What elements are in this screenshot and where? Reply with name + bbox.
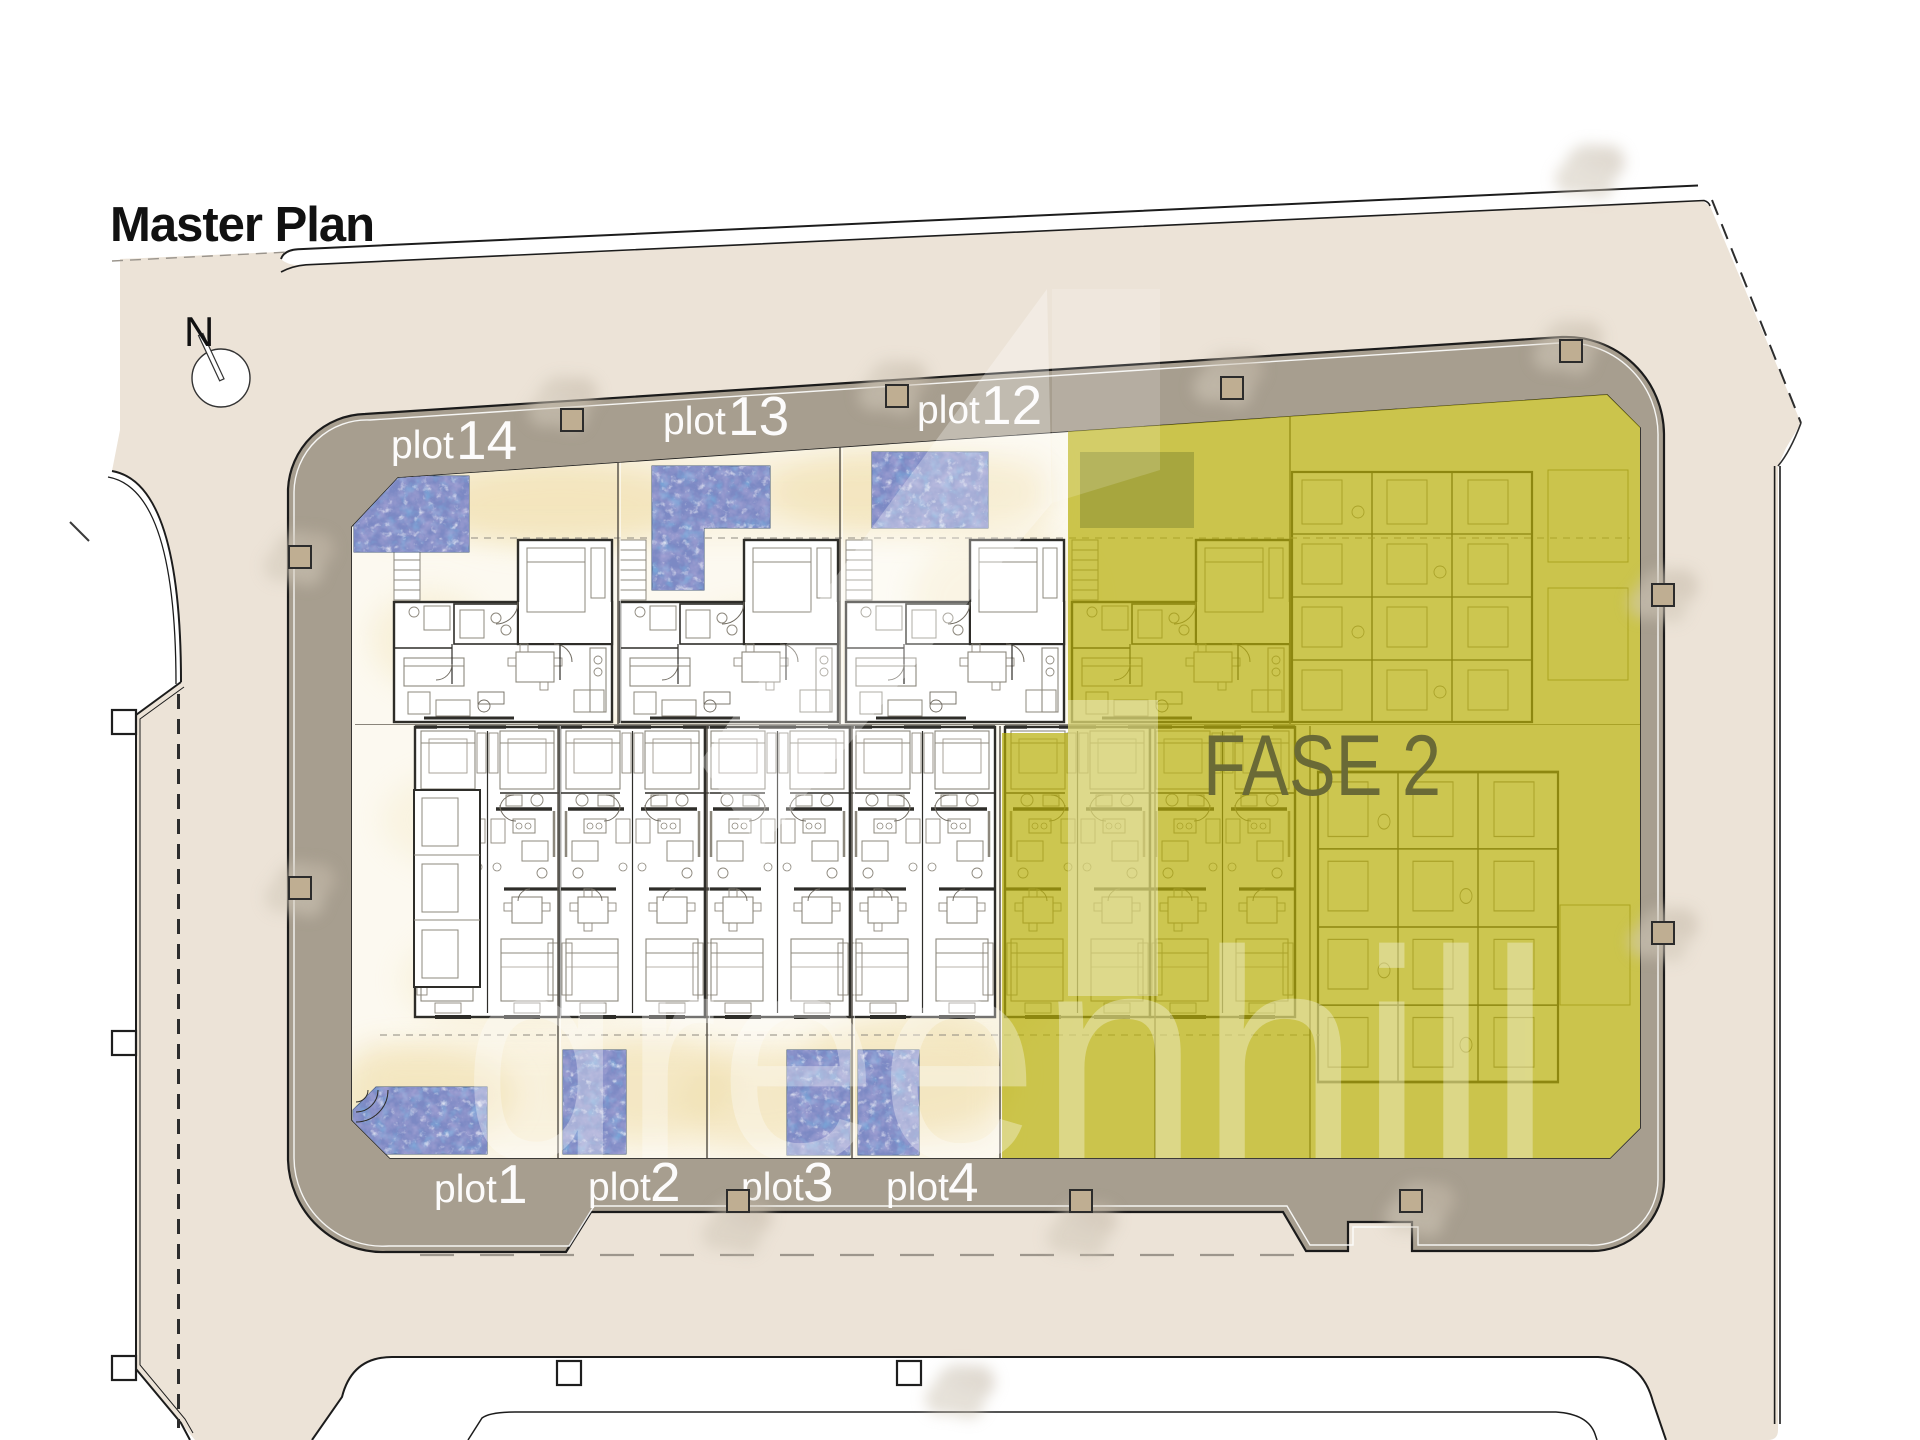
svg-text:2: 2 (650, 1151, 681, 1213)
svg-text:14: 14 (456, 409, 517, 471)
svg-text:Master Plan: Master Plan (110, 198, 374, 252)
svg-text:FASE 2: FASE 2 (1203, 718, 1441, 814)
svg-text:plot: plot (663, 400, 726, 443)
svg-text:plot: plot (886, 1166, 949, 1209)
svg-text:plot: plot (434, 1168, 497, 1211)
svg-text:1: 1 (497, 1153, 528, 1215)
svg-text:4: 4 (948, 1151, 979, 1213)
svg-text:plot: plot (391, 424, 454, 467)
svg-text:13: 13 (728, 385, 789, 447)
svg-text:3: 3 (803, 1151, 834, 1213)
svg-text:N: N (184, 308, 214, 355)
svg-text:plot: plot (588, 1166, 651, 1209)
